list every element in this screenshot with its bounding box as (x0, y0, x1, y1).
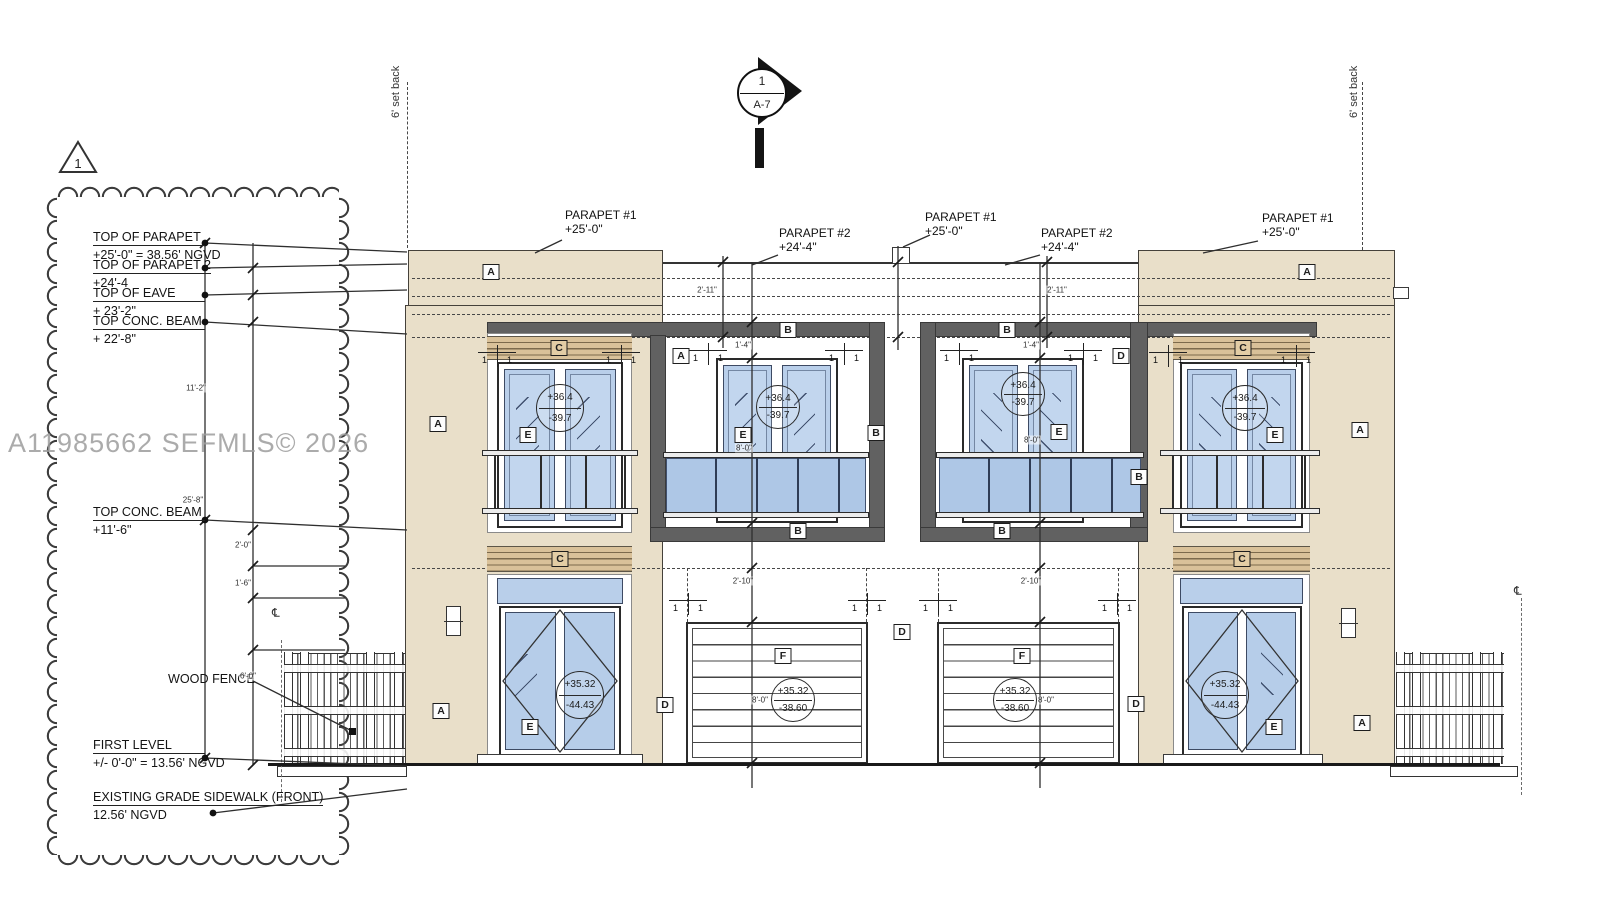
spot-elevation-divider (1204, 695, 1246, 696)
keynote-tag-b: B (999, 322, 1016, 338)
elevation-datum-name: TOP OF EAVE (93, 286, 205, 302)
tick-label: 1 (1153, 355, 1158, 365)
railing-divider (797, 458, 799, 514)
dimension-text: 2'-11" (696, 286, 718, 295)
spot-elevation-lower: -39.7 (537, 413, 583, 424)
keynote-tag-c: C (1235, 340, 1252, 356)
spot-elevation-divider (539, 408, 581, 409)
keynote-tag-a: A (1352, 422, 1369, 438)
tick-label: 1 (969, 353, 974, 363)
keynote-tag-e: E (1267, 427, 1284, 443)
fence-base-board (1390, 766, 1518, 777)
spot-elevation-upper: +35.32 (557, 679, 603, 690)
tick-stem (959, 343, 960, 365)
setback-label-right: 6' set back (1348, 66, 1360, 118)
left-door-transom (497, 578, 623, 604)
keynote-tag-a: A (433, 703, 450, 719)
rail-post (585, 456, 587, 510)
spot-elevation: +35.32-44.43 (556, 671, 604, 719)
rail-post (1172, 456, 1174, 510)
glass-reflection (981, 393, 1002, 451)
centerline-symbol: ℄ (1514, 584, 1522, 598)
parapet-callout-name: PARAPET #1 (925, 210, 997, 224)
keynote-tag-c: C (1234, 551, 1251, 567)
rail-post (1216, 456, 1218, 510)
spot-elevation: +35.32-38.60 (993, 678, 1037, 722)
tick-label: 1 (1178, 355, 1183, 365)
spot-elevation-lower: -44.43 (557, 700, 603, 711)
spot-elevation-divider (759, 407, 797, 408)
section-number: 1 (739, 74, 785, 88)
tick-stem (938, 593, 939, 615)
spot-elevation-divider (1225, 408, 1265, 409)
keynote-tag-d: D (657, 697, 674, 713)
dimension-text: 8'-0" (735, 444, 753, 453)
hidden-line (412, 278, 1390, 279)
tick-stem (1117, 593, 1118, 615)
elevation-datum-value: + 22'-8" (93, 330, 205, 346)
tick-label: 1 (482, 355, 487, 365)
keynote-tag-c: C (551, 340, 568, 356)
fence-rail (284, 748, 405, 757)
ground-line (268, 763, 1500, 766)
balcony2-rail-bottom (936, 512, 1144, 518)
elevation-datum-value: +/- 0'-0" = 13.56' NGVD (93, 754, 225, 770)
left-window-rail-bottom (482, 508, 638, 514)
spot-elevation-divider (1004, 394, 1042, 395)
tick-label: 1 (948, 603, 953, 613)
property-line-right (1521, 598, 1522, 795)
right-window-rail-top (1160, 450, 1320, 456)
railing-divider (1111, 458, 1113, 514)
tick-label: 1 (693, 353, 698, 363)
elevation-datum-name: TOP CONC. BEAM (93, 314, 205, 330)
tick-label: 1 (1093, 353, 1098, 363)
elevation-datum-label: FIRST LEVEL+/- 0'-0" = 13.56' NGVD (93, 738, 225, 770)
spot-elevation: +36.4-39.7 (536, 384, 584, 432)
property-line-left (281, 640, 282, 802)
tick-label: 1 (1127, 603, 1132, 613)
cloud-edge (57, 855, 339, 869)
tick-label: 1 (673, 603, 678, 613)
spot-elevation-upper: +35.32 (994, 686, 1036, 697)
railing-divider (715, 458, 717, 514)
dimension-text: 2'-10" (732, 577, 754, 586)
revision-triangle-icon: 1 (56, 138, 100, 176)
tick-label: 1 (877, 603, 882, 613)
parapet-callout: PARAPET #1+25'-0" (925, 210, 997, 238)
tick-label: 1 (923, 603, 928, 613)
rail-post (1262, 456, 1264, 510)
keynote-tag-b: B (994, 523, 1011, 539)
dimension-text: 11'-2" (185, 384, 207, 393)
glass-reflection (1199, 397, 1221, 456)
keynote-tag-d: D (1128, 696, 1145, 712)
keynote-tag-a: A (430, 416, 447, 432)
keynote-tag-e: E (520, 427, 537, 443)
keynote-tag-e: E (1266, 719, 1283, 735)
keynote-tag-a: A (1299, 264, 1316, 280)
spot-elevation-divider (996, 700, 1034, 701)
keynote-tag-a: A (483, 264, 500, 280)
railing-divider (756, 458, 758, 514)
spot-elevation-lower: -44.43 (1202, 700, 1248, 711)
railing-divider (1070, 458, 1072, 514)
keynote-tag-e: E (1051, 424, 1068, 440)
spot-elevation-upper: +36.4 (1002, 380, 1044, 391)
tick-stem (688, 593, 689, 615)
parapet-callout-name: PARAPET #1 (565, 208, 637, 222)
balcony2-frame-bottom (920, 527, 1148, 542)
elevation-datum-label: TOP CONC. BEAM+11'-6" (93, 505, 205, 537)
tick-label: 1 (944, 353, 949, 363)
parapet-callout-elevation: +25'-0" (1262, 225, 1334, 239)
dimension-text: 8'-0" (751, 696, 769, 705)
setback-line-left (407, 82, 408, 248)
spot-elevation-divider (774, 700, 812, 701)
elevation-datum-name: EXISTING GRADE SIDEWALK (FRONT) (93, 790, 323, 806)
parapet-callout: PARAPET #2+24'-4" (1041, 226, 1113, 254)
fence-rail (284, 706, 405, 715)
keynote-tag-a: A (1354, 715, 1371, 731)
wall-light-fixture (446, 606, 461, 636)
tick-label: 1 (852, 603, 857, 613)
spot-elevation: +35.32-44.43 (1201, 671, 1249, 719)
dimension-text: 2'-10" (1020, 577, 1042, 586)
keynote-tag-e: E (735, 427, 752, 443)
rail-post (1304, 456, 1306, 510)
elevation-datum-value: +11'-6" (93, 521, 205, 537)
keynote-tag-b: B (868, 425, 885, 441)
parapet1-block-left (408, 250, 663, 308)
spot-elevation-upper: +36.4 (537, 392, 583, 403)
spot-elevation-lower: -38.60 (772, 703, 814, 714)
tick-label: 1 (1281, 355, 1286, 365)
dimension-text: 2'-11" (1046, 286, 1068, 295)
section-marker-bar (755, 128, 764, 168)
revision-triangle-number: 1 (74, 156, 81, 171)
centerline-symbol: ℄ (272, 606, 280, 620)
spot-elevation-divider (559, 695, 601, 696)
fence-rail (1396, 706, 1504, 715)
setback-line-right (1362, 82, 1363, 250)
parapet-callout-name: PARAPET #1 (1262, 211, 1334, 225)
dimension-text: 1'-4" (734, 341, 752, 350)
keynote-tag-b: B (790, 523, 807, 539)
fence-base-board (277, 766, 407, 777)
spot-elevation-upper: +35.32 (1202, 679, 1248, 690)
keynote-tag-e: E (522, 719, 539, 735)
balcony2-frame-left (920, 322, 936, 542)
elevation-datum-value: 12.56' NGVD (93, 806, 323, 822)
tick-stem (708, 343, 709, 365)
tick-label: 1 (829, 353, 834, 363)
fence-rail (1396, 664, 1504, 673)
spot-elevation: +36.4-39.7 (1222, 385, 1268, 431)
keynote-tag-f: F (1014, 648, 1031, 664)
tick-stem (1296, 345, 1297, 367)
spot-elevation-upper: +36.4 (1223, 393, 1267, 404)
tick-label: 1 (1102, 603, 1107, 613)
hidden-line-garage-jamb (1118, 568, 1119, 622)
tick-stem (497, 345, 498, 367)
wood-fence-right (1396, 653, 1504, 764)
balcony1-glass-railing (666, 458, 866, 514)
parapet-callout-elevation: +24'-4" (779, 240, 851, 254)
fence-rail (1396, 748, 1504, 757)
dimension-text: 8'-0" (1023, 436, 1041, 445)
spot-elevation-upper: +36.4 (757, 393, 799, 404)
tick-label: 1 (854, 353, 859, 363)
cloud-edge (57, 183, 339, 197)
cloud-edge (43, 197, 57, 855)
keynote-tag-b: B (780, 322, 797, 338)
spot-elevation-upper: +35.32 (772, 686, 814, 697)
parapet-callout: PARAPET #2+24'-4" (779, 226, 851, 254)
railing-divider (1029, 458, 1031, 514)
elevation-datum-label: TOP CONC. BEAM+ 22'-8" (93, 314, 205, 346)
wall-light-fixture (1341, 608, 1356, 638)
tick-label: 1 (631, 355, 636, 365)
elevation-datum-label: EXISTING GRADE SIDEWALK (FRONT)12.56' NG… (93, 790, 323, 822)
dimension-text: 25'-8" (182, 496, 204, 505)
tick-stem (621, 345, 622, 367)
parapet-callout: PARAPET #1+25'-0" (565, 208, 637, 236)
rail-post (494, 456, 496, 510)
railing-divider (988, 458, 990, 514)
dimension-text: 1'-6" (234, 579, 252, 588)
spot-elevation: +36.4-39.7 (1001, 372, 1045, 416)
tick-label: 1 (718, 353, 723, 363)
spot-elevation: +35.32-38.60 (771, 678, 815, 722)
right-door-transom (1180, 578, 1303, 604)
fence-rail (284, 664, 405, 673)
spot-elevation-lower: -39.7 (1223, 412, 1267, 423)
elevation-datum-name: TOP OF PARAPET (93, 230, 205, 246)
railing-divider (838, 458, 840, 514)
tick-label: 1 (1306, 355, 1311, 365)
spot-elevation-lower: -38.60 (994, 703, 1036, 714)
parapet-stub (892, 247, 910, 264)
tick-stem (1083, 343, 1084, 365)
parapet-callout-name: PARAPET #2 (779, 226, 851, 240)
balcony1-frame-bottom (650, 527, 885, 542)
dimension-text: 8'-0" (1037, 696, 1055, 705)
parapet-callout: PARAPET #1+25'-0" (1262, 211, 1334, 239)
parapet-callout-elevation: +25'-0" (565, 222, 637, 236)
tick-stem (867, 593, 868, 615)
tick-stem (844, 343, 845, 365)
hidden-line (412, 314, 1390, 315)
right-window-rail-bottom (1160, 508, 1320, 514)
parapet1-block-right (1138, 250, 1395, 308)
dimension-text: 6'-0" (239, 672, 257, 681)
keynote-tag-d: D (894, 624, 911, 640)
tick-label: 1 (1068, 353, 1073, 363)
tick-label: 1 (698, 603, 703, 613)
elevation-sheet: A11985662 SEFMLS© 2026 1 1 A-7 6' set ba… (0, 0, 1600, 914)
elevation-datum-name: FIRST LEVEL (93, 738, 205, 754)
right-edge-stub (1393, 287, 1409, 299)
dimension-text: 2'-0" (234, 541, 252, 550)
spot-elevation-lower: -39.7 (1002, 397, 1044, 408)
rail-post (624, 456, 626, 510)
parapet-callout-elevation: +24'-4" (1041, 240, 1113, 254)
elevation-datum-name: TOP OF PARAPET 2 (93, 258, 211, 274)
keynote-tag-d: D (1113, 348, 1130, 364)
tick-label: 1 (606, 355, 611, 365)
balcony1-rail-bottom (663, 512, 869, 518)
rail-post (540, 456, 542, 510)
parapet-callout-elevation: +25'-0" (925, 224, 997, 238)
keynote-tag-f: F (775, 648, 792, 664)
section-sheet: A-7 (739, 99, 785, 111)
parapet-callout-name: PARAPET #2 (1041, 226, 1113, 240)
spot-elevation-lower: -39.7 (757, 410, 799, 421)
hidden-line (412, 296, 1390, 297)
tick-stem (1168, 345, 1169, 367)
wood-fence-left (284, 653, 405, 764)
keynote-tag-c: C (552, 551, 569, 567)
section-marker: 1 A-7 (737, 68, 787, 118)
keynote-tag-b: B (1131, 469, 1148, 485)
elevation-datum-name: TOP CONC. BEAM (93, 505, 205, 521)
tick-label: 1 (507, 355, 512, 365)
keynote-tag-a: A (673, 348, 690, 364)
left-window-rail-top (482, 450, 638, 456)
watermark: A11985662 SEFMLS© 2026 (8, 428, 369, 459)
spot-elevation: +36.4-39.7 (756, 385, 800, 429)
dimension-text: 1'-4" (1022, 341, 1040, 350)
setback-label-left: 6' set back (390, 66, 402, 118)
balcony1-frame-left (650, 335, 666, 542)
section-divider (740, 93, 784, 94)
